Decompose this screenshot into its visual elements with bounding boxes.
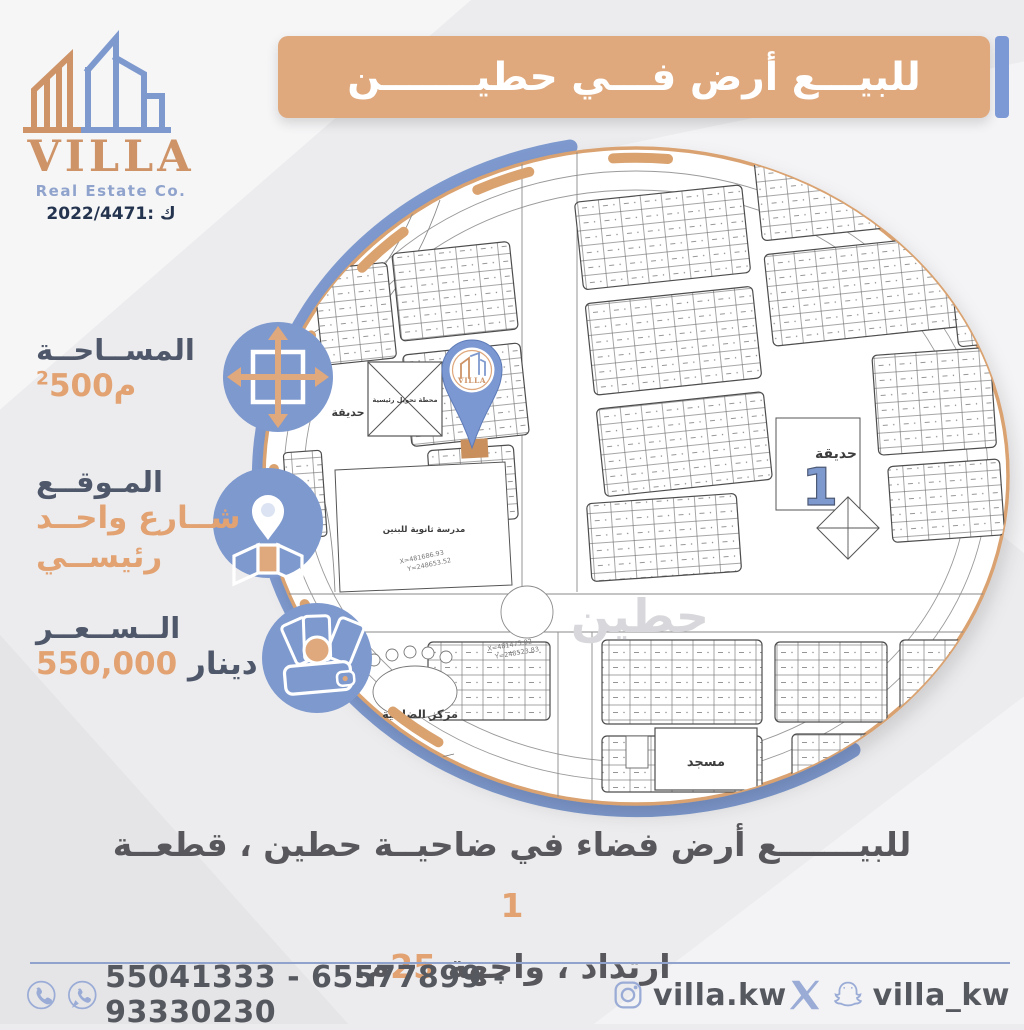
social-contact: villa_kw [787, 976, 1010, 1014]
phone-contacts: 55041333 - 65577899 - 93330230 [24, 960, 609, 1030]
map-content: محطة تحويل رئيسية حديقة مدرسة ثانوية للب… [279, 126, 1024, 800]
plot-blocks-middle [279, 347, 1006, 602]
price-info: الــســعــر 550,000 دينار [36, 612, 262, 684]
description-line1: للبيـــــــع أرض فضاء في ضاحيــة حطين ، … [112, 814, 912, 936]
area-badge-icon [223, 322, 333, 432]
page-title: للبيـــع أرض فـــي حطيـــــــن [347, 55, 920, 100]
instagram-handle: villa.kw [653, 978, 787, 1013]
area-label: المســاحــة [36, 334, 238, 367]
plot-blocks-lower [428, 640, 990, 792]
coordinate-label: X=481686.93 [399, 548, 445, 565]
district-center-label: مركز الضاحية [382, 707, 458, 721]
map-pin: VILLA [442, 340, 502, 448]
park-right-parcel [776, 418, 860, 510]
location-label: المـوقــع [36, 466, 242, 499]
transformer-station-box [368, 362, 442, 436]
map-blue-ring [259, 147, 853, 810]
header-banner: للبيـــع أرض فـــي حطيـــــــن [278, 36, 990, 118]
map-disc [264, 148, 1008, 804]
brand-name: VILLA [18, 136, 204, 179]
station-label: محطة تحويل رئيسية [373, 396, 438, 404]
park-right-label: حديقة [815, 446, 857, 462]
social-handle: villa_kw [873, 978, 1010, 1013]
banner-accent-bar [995, 36, 1009, 118]
price-value: 550,000 دينار [36, 645, 262, 684]
license-number: 2022/4471: ك [18, 204, 204, 224]
map-copper-arc [274, 158, 668, 764]
coordinate-label: Y=248653.52 [406, 556, 452, 573]
plot-blocks-upper [306, 126, 1024, 525]
target-plot [461, 438, 489, 458]
x-icon [787, 977, 823, 1013]
district-watermark: حطين [571, 589, 709, 643]
footer-contacts: 55041333 - 65577899 - 93330230 villa.kw … [24, 972, 1010, 1018]
coordinate-label: Y=248523.83 [493, 645, 539, 661]
price-badge-icon [262, 603, 372, 713]
instagram-contact: villa.kw [609, 976, 787, 1014]
location-info: المـوقــع شــارع واحــد رئيســي [36, 466, 242, 577]
whatsapp-icon [65, 975, 100, 1015]
district-center-shapes [368, 646, 457, 759]
area-value: 2500م [36, 367, 238, 406]
phone-numbers: 55041333 - 65577899 - 93330230 [105, 960, 609, 1030]
park-left-label: حديقة [332, 406, 365, 419]
school-label: مدرسة ثانوية للبنين [383, 525, 465, 535]
price-label: الــســعــر [36, 612, 262, 645]
coordinate-label: X=481475.02 [487, 637, 533, 653]
mosque-label: مسجد [687, 755, 725, 770]
mosque-parcel [655, 728, 757, 790]
brand-subtitle: Real Estate Co. [18, 182, 204, 200]
brand-logo: VILLA Real Estate Co. 2022/4471: ك [18, 18, 204, 224]
location-value-line2: رئيســي [36, 538, 242, 577]
park-number: 1 [802, 458, 838, 518]
pin-brand-label: VILLA [457, 376, 486, 385]
phone-icon [24, 975, 59, 1015]
location-value-line1: شــارع واحــد [36, 499, 242, 538]
snapchat-icon [829, 976, 867, 1014]
school-parcel [335, 462, 512, 592]
area-info: المســاحــة 2500م [36, 334, 238, 406]
buildings-logo-icon [18, 18, 178, 134]
instagram-icon [609, 976, 647, 1014]
